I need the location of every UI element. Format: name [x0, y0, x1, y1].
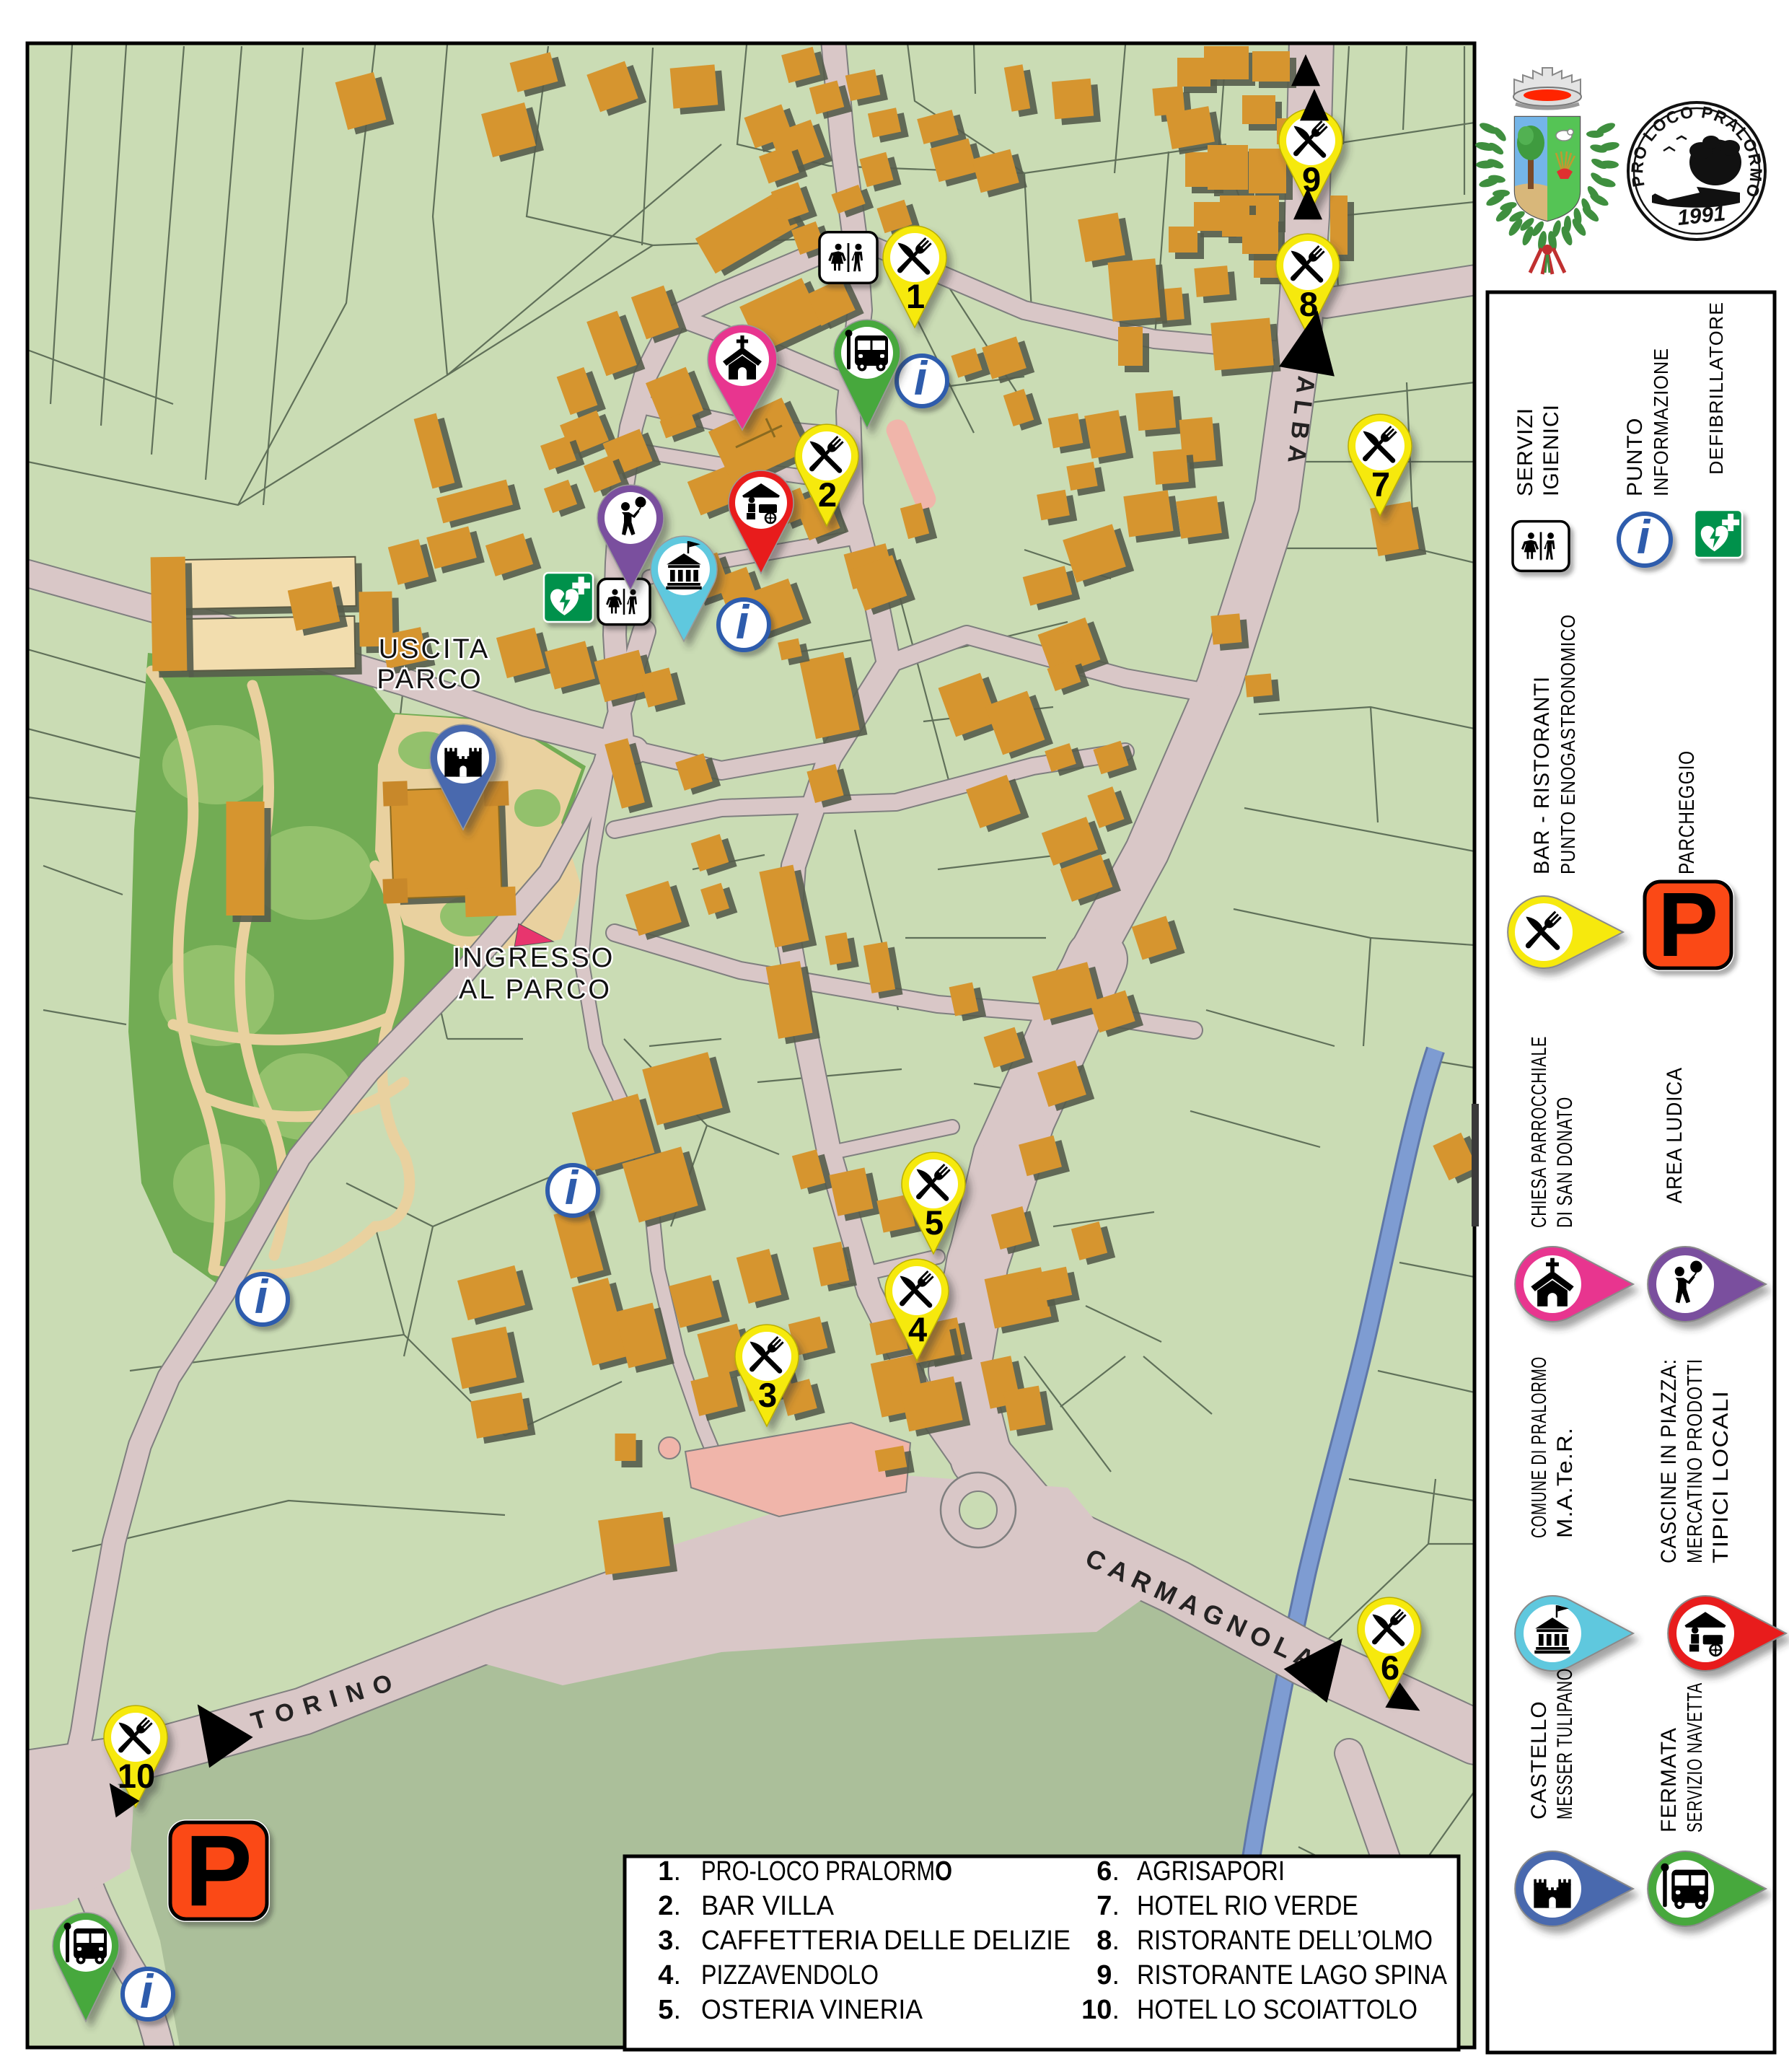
svg-text:PRO-LOCO PRALORMO: PRO-LOCO PRALORMO — [701, 1856, 952, 1887]
svg-text:i: i — [255, 1270, 269, 1323]
svg-text:5.: 5. — [658, 1995, 681, 2025]
svg-text:2.: 2. — [658, 1891, 681, 1921]
svg-text:DEFIBRILLATORE: DEFIBRILLATORE — [1705, 302, 1727, 475]
svg-text:INFORMAZIONE: INFORMAZIONE — [1650, 348, 1672, 496]
svg-text:6: 6 — [1381, 1649, 1399, 1687]
svg-text:1991: 1991 — [1676, 201, 1727, 230]
svg-text:10: 10 — [118, 1757, 155, 1795]
svg-text:CAFFETTERIA DELLE DELIZIE: CAFFETTERIA DELLE DELIZIE — [701, 1926, 1071, 1956]
svg-text:3: 3 — [758, 1376, 777, 1414]
svg-text:4: 4 — [908, 1310, 927, 1348]
svg-text:AREA LUDICA: AREA LUDICA — [1663, 1067, 1687, 1203]
svg-text:COMUNE DI PRALORMO: COMUNE DI PRALORMO — [1528, 1356, 1551, 1538]
svg-text:i: i — [565, 1161, 579, 1214]
svg-text:CASCINE IN PIAZZA:: CASCINE IN PIAZZA: — [1657, 1358, 1681, 1563]
svg-text:4.: 4. — [658, 1960, 681, 1990]
svg-text:PUNTO ENOGASTRONOMICO: PUNTO ENOGASTRONOMICO — [1557, 614, 1579, 874]
svg-text:PARCO: PARCO — [377, 664, 483, 695]
svg-text:PARCHEGGIO: PARCHEGGIO — [1675, 750, 1699, 874]
svg-text:HOTEL LO SCOIATTOLO: HOTEL LO SCOIATTOLO — [1137, 1995, 1417, 2025]
svg-text:DI SAN DONATO: DI SAN DONATO — [1553, 1097, 1577, 1228]
svg-text:OSTERIA VINERIA: OSTERIA VINERIA — [701, 1995, 923, 2025]
svg-text:5: 5 — [925, 1203, 944, 1242]
svg-text:CHIESA PARROCCHIALE: CHIESA PARROCCHIALE — [1528, 1036, 1551, 1228]
svg-text:CASTELLO: CASTELLO — [1527, 1700, 1551, 1819]
svg-text:9: 9 — [1302, 160, 1321, 198]
svg-text:USCITA: USCITA — [379, 634, 491, 664]
svg-text:7.: 7. — [1096, 1891, 1120, 1921]
svg-text:FERMATA: FERMATA — [1657, 1727, 1681, 1832]
svg-text:1: 1 — [906, 277, 925, 315]
svg-text:SERVIZIO NAVETTA: SERVIZIO NAVETTA — [1684, 1682, 1707, 1832]
svg-text:i: i — [1637, 510, 1651, 563]
svg-text:9.: 9. — [1096, 1960, 1120, 1990]
svg-text:P: P — [185, 1814, 252, 1927]
svg-text:BAR - RISTORANTI: BAR - RISTORANTI — [1530, 676, 1554, 874]
svg-text:BAR VILLA: BAR VILLA — [701, 1891, 835, 1921]
svg-text:RISTORANTE LAGO SPINA: RISTORANTE LAGO SPINA — [1137, 1960, 1448, 1990]
svg-text:AGRISAPORI: AGRISAPORI — [1137, 1856, 1285, 1887]
svg-text:i: i — [140, 1965, 154, 2018]
svg-text:8.: 8. — [1096, 1926, 1120, 1956]
svg-text:2: 2 — [818, 475, 837, 514]
svg-text:i: i — [914, 351, 928, 405]
svg-text:i: i — [736, 595, 750, 649]
svg-text:6.: 6. — [1096, 1856, 1120, 1887]
svg-text:INGRESSO: INGRESSO — [453, 943, 615, 973]
svg-text:3.: 3. — [658, 1926, 681, 1956]
svg-text:PIZZAVENDOLO: PIZZAVENDOLO — [701, 1960, 879, 1990]
svg-text:HOTEL RIO VERDE: HOTEL RIO VERDE — [1137, 1891, 1358, 1921]
svg-text:MERCATINO PRODOTTI: MERCATINO PRODOTTI — [1684, 1358, 1707, 1563]
svg-text:TIPICI LOCALI: TIPICI LOCALI — [1709, 1390, 1733, 1563]
svg-text:1.: 1. — [658, 1856, 681, 1887]
svg-text:AL PARCO: AL PARCO — [459, 975, 612, 1005]
svg-text:7: 7 — [1371, 465, 1390, 504]
svg-text:MESSER TULIPANO: MESSER TULIPANO — [1553, 1668, 1577, 1819]
svg-text:SERVIZI: SERVIZI — [1513, 408, 1537, 496]
svg-text:10.: 10. — [1081, 1995, 1120, 2025]
svg-text:IGIENICI: IGIENICI — [1539, 404, 1563, 496]
svg-text:RISTORANTE DELL’OLMO: RISTORANTE DELL’OLMO — [1137, 1926, 1433, 1956]
svg-text:M.A.Te.R.: M.A.Te.R. — [1553, 1427, 1577, 1538]
svg-text:PUNTO: PUNTO — [1623, 418, 1647, 496]
svg-text:P: P — [1658, 874, 1718, 975]
